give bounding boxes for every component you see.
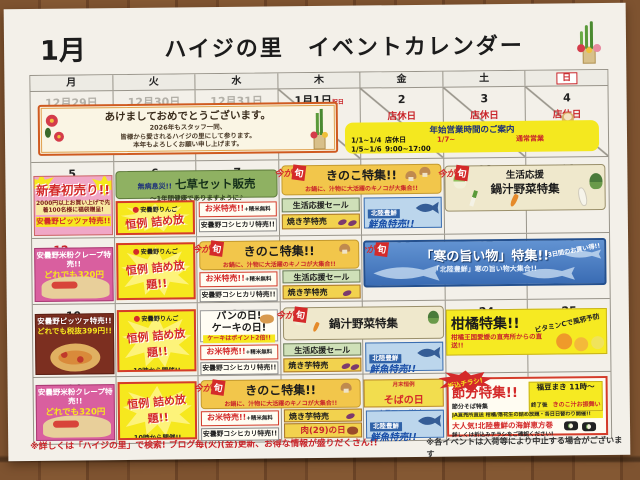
ringo-time: 10時から開催!! [119, 364, 194, 372]
mamemaki-box: 福豆まき 11時〜 終了後 きのこ汁お振舞い [529, 381, 603, 412]
mushroom-special-event: 今が旬 きのこ特集!! お鍋に、汁物に大活躍のキノコが大集合!! [201, 379, 361, 410]
kadomatsu-mini-icon [306, 107, 332, 151]
new-year-first-sale-event: 新春初売り!! 2000円以上お買い上げで先着100名様に福袋贈呈! 安曇野ピッ… [33, 175, 113, 236]
sweet-potato-icon [342, 289, 352, 297]
crepe-title: 安曇野米粉クレープ特売!! [37, 387, 114, 406]
sengyo-label: 鮮魚特売!! [368, 219, 438, 231]
apple-stuffing-event: 安曇野りんご 恒例 詰め放題!! 10時から開催!! [116, 200, 195, 235]
ringo-title: 恒例 詰め放題!! [118, 390, 196, 429]
hatsuuri-pizza: 安曇野ピッツァ特売!! [36, 216, 111, 227]
date-label: 3 [480, 92, 488, 105]
month-label: 1月 [40, 28, 86, 67]
weekday-fri: 金 [360, 72, 443, 88]
kome-sub: 安曇野コシヒカリ特売!! [199, 218, 277, 232]
sengyo-label: 鮮魚特売!! [370, 432, 440, 444]
week1-row: 12月29日 12月30日 12月31日 1月1日祝日 店休日 2 店休日 3 … [31, 85, 609, 162]
weekday-sun: 日 [525, 70, 608, 86]
citrus-special-event: 柑橘特集!! 柑橘王国愛媛の直売所からの直送!! ビタミンCで風邪予防 [446, 308, 607, 356]
calendar-grid: 月 火 水 木 金 土 日 12月29日 12月30日 12月31日 1月1日祝… [29, 69, 612, 445]
apple-icon [134, 249, 140, 255]
crepe-photo [41, 276, 109, 299]
pizza-sale-event: 安曇野ピッツァ特売!! どれでも税抜399円!! [35, 313, 115, 375]
weekday-sun-label: 日 [556, 72, 577, 84]
hours-short-value: 9:00~17:00 [385, 145, 437, 155]
mushroom-icon [405, 171, 416, 179]
life-support-sale-event: 生活応援セール [282, 270, 360, 284]
weekday-tue: 火 [112, 74, 195, 90]
pizza-price: どれでも税抜399円!! [36, 325, 113, 337]
crepe-title: 安曇野米粉クレープ特売!! [35, 250, 112, 269]
kinoko-title: きのこ特集!! [202, 381, 360, 400]
sengyo-brand: 北陸豊鮮 [370, 422, 402, 431]
mushroom-special-event: 今が旬 きのこ特集!! お鍋に、汁物に大活躍のキノコが大集合!! [281, 164, 441, 196]
hatsuuri-title: 新春初売り!! [34, 179, 111, 199]
sweet-potato-icon [341, 362, 351, 370]
kome-title: お米特売!!+精米無料 [199, 271, 277, 287]
life-support-sale-event: 生活応援セール [283, 343, 361, 357]
rice-sale-event: お米特売!!+精米無料 安曇野コシヒカリ特売!! [201, 410, 279, 439]
weekday-mon: 月 [30, 75, 112, 91]
hotpot-vegetable-event: 今が旬 鍋汁野菜特集 [283, 306, 444, 341]
nabe-title: 鍋汁野菜特集 [284, 307, 443, 333]
lemon-icon [591, 336, 604, 349]
kome-title: お米特売!!+精米無料 [199, 201, 277, 217]
hours-short-range: 1/5~1/6 [351, 145, 385, 154]
ringo-time: 10時から開催!! [120, 431, 195, 440]
pizza-photo [50, 343, 100, 372]
sweet-potato-sale-event: 焼き芋特売 [282, 214, 360, 230]
pan-sub: ケーキはポイント2倍!! [203, 334, 275, 343]
apple-stuffing-event: 安曇野りんご 恒例 詰め放題!! 10時から開催!! なくなり次第終了 [117, 309, 197, 372]
ringo-maker: 安曇野りんご [118, 246, 193, 256]
leaf-vegetable-icon [428, 311, 439, 324]
crepe-photo [43, 415, 111, 438]
greeting-line3: 本年もよろしくお願い申し上げます。 [40, 139, 336, 151]
kinoko-title: きのこ特集!! [200, 242, 358, 261]
apple-stuffing-event: 恒例 詰め放題!! 10時から開催!! なくなり次第終了 [118, 381, 198, 440]
kome-sub: 安曇野コシヒカリ特売!! [200, 288, 278, 302]
mushroom-special-event: 今が旬 きのこ特集!! お鍋に、汁物に大活躍のキノコが大集合!! [199, 240, 359, 271]
orange-icon [574, 337, 588, 351]
mushroom-icon [341, 383, 352, 391]
fish-icon [415, 346, 441, 360]
orange-icon [556, 333, 572, 349]
week3-row: 12成人の日 13 14 15 16 17 18 安曇野米粉クレープ特売!! ど… [32, 232, 610, 304]
ringo-time: 10時から開催!! [119, 295, 194, 300]
soba-day-event: 月末恒例 そばの日 安曇野そば特売!! [364, 379, 444, 408]
weekday-thu: 木 [277, 73, 360, 89]
leaf-vegetable-icon [589, 173, 602, 189]
soba-title: そばの日 [384, 395, 424, 406]
apple-icon [133, 207, 139, 213]
rice-sale-event: お米特売!!+精米無料 安曇野コシヒカリ特売!! [200, 344, 278, 373]
kome-title: お米特売!!+精米無料 [200, 344, 278, 360]
mamemaki-title: 福豆まき 11時〜 [530, 382, 602, 392]
sweet-potato-icon [345, 412, 355, 420]
apple-icon [134, 316, 140, 322]
sengyo-brand: 北陸豊鮮 [368, 209, 400, 218]
sweet-potato-icon [347, 219, 357, 227]
ringo-maker: 安曇野りんご [119, 313, 194, 323]
rice-flour-crepe-event: 安曇野米粉クレープ特売!! どれでも320円 [36, 384, 116, 441]
kome-sub: 安曇野コシヒカリ特売!! [200, 361, 278, 375]
weekday-wed: 水 [194, 73, 277, 89]
kinoko-sub: お鍋に、汁物に大活躍のキノコが大集合!! [282, 183, 440, 194]
new-year-hours-box: 年始営業時間のご案内 1/1~1/4 店休日 1/7~ 通常営業 1/5~1/6… [345, 120, 599, 154]
nanakusa-lead: 無病息災!! [138, 183, 172, 191]
kinoko-title: きのこ特集!! [282, 166, 440, 185]
life-support-sale-event: 生活応援セール [282, 198, 360, 213]
closed-label: 店休日 [444, 107, 526, 122]
fish-icon [416, 414, 442, 428]
in-season-badge: 今が旬 [363, 238, 388, 257]
camellia-icon [44, 111, 66, 151]
kankitsu-sub: 柑橘王国愛媛の直売所からの直送!! [451, 333, 543, 350]
week2-row: 5 6 7 8 9 10 11 新春初売り!! 2000円以上お買い上げで先着1… [31, 156, 609, 238]
sengyo-label: 鮮魚特売!! [369, 364, 439, 376]
fresh-fish-sale-event: 北陸豊鮮 鮮魚特売!! [366, 410, 444, 439]
date-label: 4 [563, 91, 571, 104]
fish-icon [414, 201, 440, 215]
in-season-badge: 今が旬 [194, 376, 225, 395]
nanakusa-title: 七草セット販売 [175, 177, 256, 192]
sweet-potato-sale-event: 焼き芋特売 [283, 358, 361, 373]
setsubun-special-event: 折込チラシ! 節分特集!! 節分そば特集 福豆まき 11時〜 終了後 きのこ汁お… [447, 376, 609, 437]
bread-icon [260, 314, 274, 323]
calendar-paper: 1月 ハイジの里 イベントカレンダー 月 火 水 木 金 土 日 12月29日 … [4, 3, 631, 461]
sweet-potato-sale-event: 焼き芋特売 [284, 409, 362, 423]
mamemaki-note: きのこ汁お振舞い [553, 401, 601, 409]
meat-icon [347, 427, 358, 435]
kome-sub: 安曇野コシヒカリ特売!! [201, 427, 279, 441]
kinoko-sub: お鍋に、汁物に大活躍のキノコが大集合!! [202, 398, 360, 409]
mushroom-icon [419, 167, 430, 175]
page-title: ハイジの里 イベントカレンダー [144, 28, 544, 64]
setsubun-strip: JA直売所直送 柑橘/落花生の詰め放題・各日日替わり開催!! [452, 411, 603, 420]
closed-label: 店休日 [361, 108, 443, 123]
rice-flour-crepe-event: 安曇野米粉クレープ特売!! どれでも320円 [34, 247, 114, 302]
rice-sale-event: お米特売!!+精米無料 安曇野コシヒカリ特売!! [199, 201, 277, 234]
ehomaki-note: 詳しくは折込みチラシをご確認ください! [452, 429, 603, 439]
in-season-badge: 今が旬 [192, 237, 223, 256]
new-year-greeting-box: あけましておめでとうございます。 2026年もスタッフ一同、 皆様から愛されるハ… [38, 102, 339, 156]
sengyo-brand: 北陸豊鮮 [369, 354, 401, 363]
mamemaki-after: 終了後 [531, 403, 548, 409]
nanakusa-set-event: 無病息災!!七草セット販売 〜1年間健康でありますように♪ [115, 169, 277, 199]
hours-normal-range: 1/7~ [437, 135, 467, 144]
week5-row: 26 27 28 29 30 31 2月1日 安曇野米粉クレープ特売!! どれで… [34, 371, 612, 444]
mushroom-icon [339, 244, 350, 252]
sweet-potato-icon [337, 218, 347, 226]
soba-pre: 月末恒例 [365, 380, 443, 389]
ehomaki-roll-icon [582, 422, 596, 431]
in-season-badge: 今が旬 [276, 303, 307, 322]
ehomaki-roll-icon [564, 421, 578, 430]
fresh-fish-sale-event: 北陸豊鮮 鮮魚特売!! [364, 197, 442, 229]
cold-season-delicacy-event: 今が旬 「寒の旨い物」特集!! 「北陸豊鮮」寒の旨い物大集合!! 3日間のお買い… [363, 238, 606, 288]
date-label: 2 [398, 93, 406, 106]
pan-title2: ケーキの日! [201, 322, 277, 334]
hours-closed-range: 1/1~1/4 [351, 136, 385, 145]
bread-cake-day-event: パンの日! ケーキの日! ケーキはポイント2倍!! [200, 309, 278, 342]
ringo-title: 恒例 詰め放題!! [118, 324, 196, 363]
weekday-sat: 土 [442, 71, 525, 87]
rice-sale-event: お米特売!!+精米無料 安曇野コシヒカリ特売!! [199, 271, 277, 300]
week4-row: 19 20大寒 21 22 23 24 25 安曇野ピッツァ特売!! どれでも税… [33, 298, 611, 377]
hatsuuri-detail: 2000円以上お買い上げで先着100名様に福袋贈呈! [36, 200, 111, 215]
in-season-badge: 今が旬 [437, 161, 468, 180]
hotpot-vegetable-event: 今が旬 生活応援 鍋汁野菜特集 [444, 164, 605, 212]
sweet-potato-icon [350, 363, 360, 371]
fresh-fish-sale-event: 北陸豊鮮 鮮魚特売!! [365, 342, 443, 372]
kome-title: お米特売!!+精米無料 [201, 410, 279, 426]
meat-day-event: 肉(29)の日 [284, 423, 362, 439]
apple-stuffing-event: 安曇野りんご 恒例 詰め放題!! 10時から開催!! なくなり次第終了 [116, 242, 196, 300]
kadomatsu-icon [570, 21, 608, 65]
sweet-potato-sale-event: 焼き芋特売 [283, 285, 361, 300]
kinoko-sub: お鍋に、汁物に大活躍のキノコが大集合!! [200, 259, 358, 270]
in-season-badge: 今が旬 [274, 161, 305, 180]
ringo-title: 恒例 詰め放題!! [117, 256, 195, 295]
